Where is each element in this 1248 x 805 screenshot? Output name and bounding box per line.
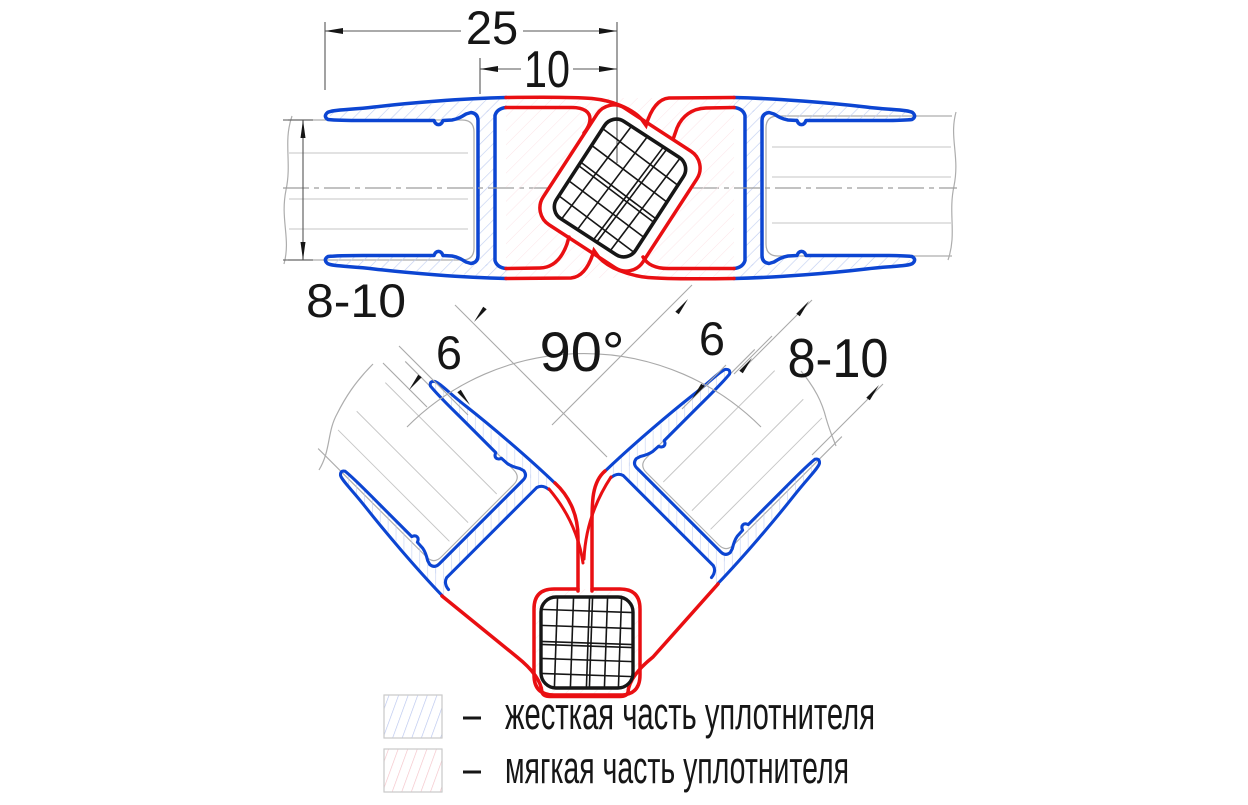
svg-text:8-10: 8-10	[306, 274, 406, 327]
svg-text:8-10: 8-10	[788, 327, 889, 389]
svg-text:25: 25	[466, 1, 518, 54]
svg-text:мягкая часть уплотнителя: мягкая часть уплотнителя	[505, 742, 849, 793]
svg-text:6: 6	[699, 312, 725, 365]
svg-text:жесткая часть уплотнителя: жесткая часть уплотнителя	[505, 688, 875, 739]
svg-text:6: 6	[436, 326, 462, 379]
svg-text:10: 10	[524, 41, 570, 99]
svg-text:90°: 90°	[540, 320, 625, 383]
